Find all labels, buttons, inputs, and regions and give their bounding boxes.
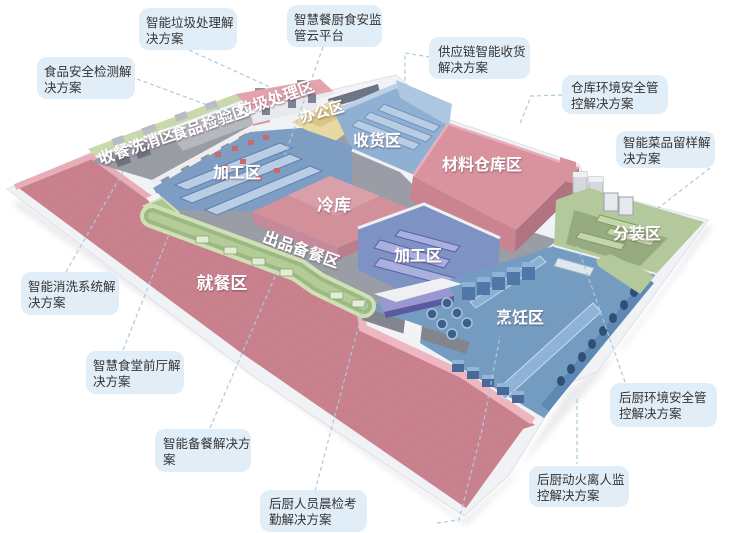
svg-text:决方案: 决方案 [28, 292, 66, 311]
svg-text:分装区: 分装区 [613, 220, 661, 244]
svg-text:解决方案: 解决方案 [438, 57, 489, 76]
svg-text:管云平台: 管云平台 [294, 25, 344, 44]
svg-text:烹饪区: 烹饪区 [496, 304, 544, 328]
svg-text:材料仓库区: 材料仓库区 [442, 151, 522, 175]
svg-text:冷库: 冷库 [317, 191, 351, 216]
svg-text:加工区: 加工区 [213, 159, 261, 183]
svg-text:决方案: 决方案 [146, 28, 184, 47]
svg-text:决方案: 决方案 [44, 77, 82, 96]
svg-text:决方案: 决方案 [623, 148, 661, 167]
svg-text:勤解决方案: 勤解决方案 [269, 509, 332, 528]
svg-text:控解决方案: 控解决方案 [571, 93, 634, 112]
svg-text:决方案: 决方案 [93, 371, 131, 390]
svg-text:控解决方案: 控解决方案 [537, 485, 600, 504]
svg-text:就餐区: 就餐区 [197, 269, 248, 294]
svg-text:控解决方案: 控解决方案 [619, 403, 682, 422]
svg-text:加工区: 加工区 [394, 242, 442, 266]
svg-text:收货区: 收货区 [353, 127, 401, 151]
svg-text:智能备餐解决方: 智能备餐解决方 [163, 433, 251, 452]
svg-text:案: 案 [163, 449, 176, 468]
